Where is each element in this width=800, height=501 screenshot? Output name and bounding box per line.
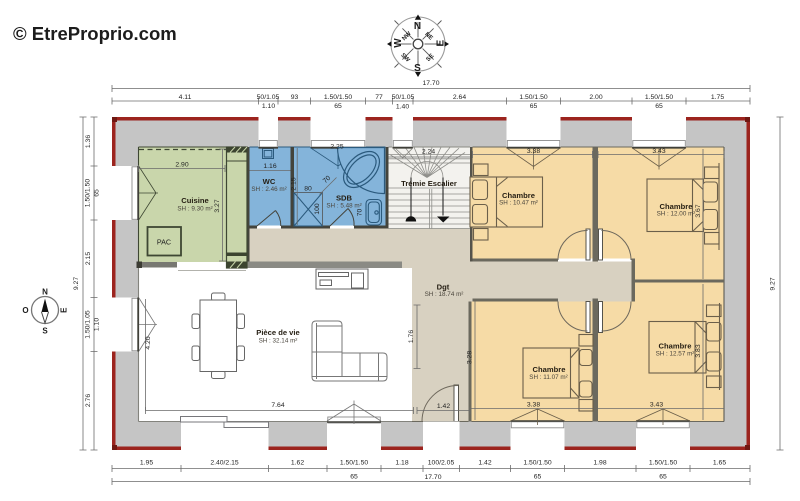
svg-text:Trémie Escalier: Trémie Escalier (401, 179, 457, 188)
svg-text:65: 65 (350, 474, 358, 481)
svg-text:N: N (414, 21, 421, 32)
svg-text:4.11: 4.11 (179, 94, 192, 101)
svg-text:17.70: 17.70 (424, 474, 441, 481)
svg-text:9.27: 9.27 (770, 277, 777, 290)
svg-text:SH : 9.30 m²: SH : 9.30 m² (177, 206, 212, 213)
svg-text:WC: WC (263, 177, 276, 186)
svg-text:7.64: 7.64 (271, 402, 284, 409)
svg-text:SH : 5.48 m²: SH : 5.48 m² (326, 203, 361, 210)
svg-text:1.50/1.50: 1.50/1.50 (649, 460, 678, 467)
svg-text:2.24: 2.24 (422, 149, 435, 156)
svg-text:E: E (59, 307, 68, 313)
svg-text:3.38: 3.38 (527, 148, 540, 155)
svg-text:1.98: 1.98 (593, 460, 606, 467)
svg-text:65: 65 (534, 474, 542, 481)
svg-text:3.83: 3.83 (695, 344, 702, 357)
svg-text:1.36: 1.36 (85, 135, 92, 148)
svg-text:17.70: 17.70 (422, 80, 439, 87)
svg-text:SH : 12.00 m²: SH : 12.00 m² (657, 211, 696, 218)
svg-text:1.50/1.50: 1.50/1.50 (645, 94, 674, 101)
svg-text:1.18: 1.18 (395, 460, 408, 467)
svg-text:2.15: 2.15 (85, 252, 92, 265)
svg-text:© EtreProprio.com: © EtreProprio.com (13, 23, 177, 44)
svg-text:65: 65 (659, 474, 667, 481)
svg-text:1.50/1.50: 1.50/1.50 (519, 94, 548, 101)
svg-text:S: S (414, 63, 421, 74)
svg-text:3.28: 3.28 (467, 351, 474, 364)
svg-text:2.76: 2.76 (85, 394, 92, 407)
svg-text:70: 70 (357, 209, 364, 217)
svg-text:3.43: 3.43 (650, 402, 663, 409)
svg-text:2.00: 2.00 (589, 94, 602, 101)
svg-text:SH : 12.57 m²: SH : 12.57 m² (656, 351, 695, 358)
svg-text:Chambre: Chambre (533, 365, 566, 374)
svg-text:65: 65 (655, 103, 663, 110)
svg-text:1.62: 1.62 (291, 460, 304, 467)
svg-text:SH : 2.46 m²: SH : 2.46 m² (251, 186, 286, 193)
svg-text:4.20: 4.20 (145, 336, 152, 349)
svg-text:1.75: 1.75 (711, 94, 724, 101)
svg-text:1.76: 1.76 (408, 330, 415, 343)
svg-text:1.95: 1.95 (140, 460, 153, 467)
svg-text:3.43: 3.43 (652, 148, 665, 155)
svg-text:1.65: 1.65 (713, 460, 726, 467)
svg-text:Cuisine: Cuisine (181, 196, 208, 205)
svg-text:SH : 11.07 m²: SH : 11.07 m² (529, 374, 567, 381)
svg-text:100: 100 (314, 203, 321, 215)
svg-text:1.40: 1.40 (396, 104, 409, 111)
svg-text:65: 65 (334, 103, 342, 110)
svg-text:1.10: 1.10 (94, 318, 101, 331)
svg-text:1.50/1.50: 1.50/1.50 (340, 460, 369, 467)
svg-text:77: 77 (375, 94, 383, 101)
svg-text:65: 65 (530, 103, 538, 110)
svg-text:S: S (42, 327, 48, 336)
svg-text:3.67: 3.67 (695, 204, 702, 217)
svg-text:3.27: 3.27 (214, 199, 221, 212)
svg-text:2.40/2.15: 2.40/2.15 (210, 460, 239, 467)
svg-text:2.90: 2.90 (175, 162, 188, 169)
svg-text:SH : 32.14 m²: SH : 32.14 m² (259, 338, 298, 345)
svg-text:50/1.05: 50/1.05 (257, 94, 280, 101)
svg-text:50/1.05: 50/1.05 (392, 94, 415, 101)
svg-text:2.15: 2.15 (290, 177, 297, 190)
svg-text:SH : 18.74 m²: SH : 18.74 m² (425, 291, 464, 298)
svg-text:O: O (22, 306, 28, 315)
svg-text:1.50/1.50: 1.50/1.50 (523, 460, 552, 467)
svg-text:1.42: 1.42 (437, 403, 450, 410)
svg-text:9.27: 9.27 (73, 277, 80, 290)
svg-text:Chambre: Chambre (659, 342, 692, 351)
svg-text:Pièce de vie: Pièce de vie (256, 328, 299, 337)
svg-text:1.50/1.50: 1.50/1.50 (85, 179, 92, 208)
svg-text:93: 93 (291, 94, 299, 101)
svg-text:80: 80 (304, 186, 312, 193)
svg-text:SDB: SDB (336, 194, 353, 203)
svg-text:3.38: 3.38 (527, 402, 540, 409)
svg-text:1.50/1.05: 1.50/1.05 (85, 310, 92, 339)
svg-text:2.25: 2.25 (330, 144, 343, 151)
svg-text:N: N (42, 288, 48, 297)
svg-text:65: 65 (94, 189, 101, 197)
svg-text:100/2.05: 100/2.05 (428, 460, 455, 467)
svg-text:1.50/1.50: 1.50/1.50 (324, 94, 353, 101)
svg-text:PAC: PAC (157, 238, 171, 247)
svg-text:2.64: 2.64 (453, 94, 466, 101)
svg-text:E: E (435, 40, 446, 47)
svg-text:1.10: 1.10 (262, 103, 275, 110)
svg-text:SH : 10.47 m²: SH : 10.47 m² (499, 200, 538, 207)
svg-text:1.16: 1.16 (263, 163, 276, 170)
svg-text:1.42: 1.42 (478, 460, 491, 467)
